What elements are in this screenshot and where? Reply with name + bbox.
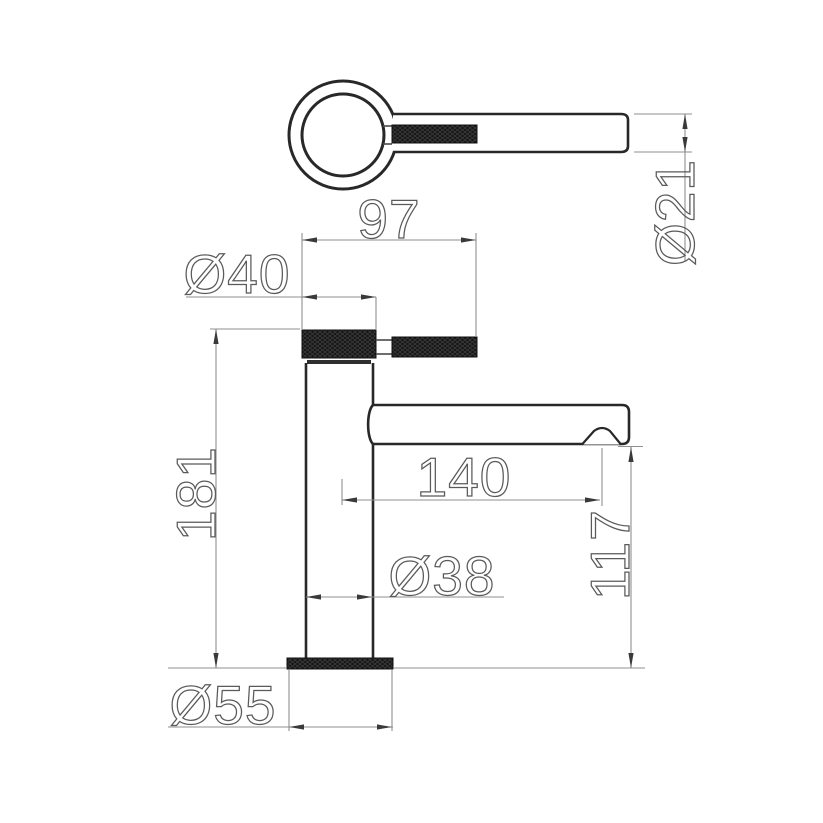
dim-21: Ø21 <box>634 114 706 266</box>
base-knurl-ring <box>287 658 393 669</box>
arrowhead <box>682 137 687 152</box>
dim-label-overall-height: 181 <box>165 446 227 541</box>
dim-label-body-diameter: Ø38 <box>389 545 496 607</box>
technical-drawing: 97 Ø40 Ø21 181 <box>0 0 823 823</box>
arrowhead <box>213 329 218 344</box>
dim-40: Ø40 <box>184 243 376 329</box>
lever-knurl-grip-top <box>392 125 477 143</box>
arrowhead <box>302 237 317 242</box>
top-view <box>289 81 628 189</box>
dim-label-handle-length: 97 <box>357 188 420 250</box>
dim-label-lever-diameter: Ø21 <box>644 159 706 266</box>
dim-label-spout-reach: 140 <box>417 446 512 508</box>
dim-97: 97 <box>302 188 476 336</box>
arrowhead <box>361 294 376 299</box>
arrowhead <box>213 653 218 668</box>
drawing-canvas: 97 Ø40 Ø21 181 <box>0 0 823 823</box>
dim-label-base-diameter: Ø55 <box>170 674 277 736</box>
arrowhead <box>585 497 600 502</box>
dim-117: 117 <box>579 447 643 669</box>
lever-knurl-grip-front <box>392 337 477 357</box>
dim-140: 140 <box>342 446 602 508</box>
arrowhead <box>682 114 687 129</box>
arrowhead <box>628 447 633 462</box>
arrowhead <box>461 237 476 242</box>
arrowhead <box>289 724 304 729</box>
arrowhead <box>377 724 392 729</box>
dim-181: 181 <box>165 329 300 668</box>
handle-cap-knurl <box>302 330 376 358</box>
handle-ring-inner <box>302 94 384 176</box>
arrowhead <box>628 653 633 668</box>
dim-55: Ø55 <box>168 670 393 736</box>
arrowhead <box>302 294 317 299</box>
faucet-body-fill <box>306 363 373 658</box>
dim-label-cap-diameter: Ø40 <box>184 243 291 305</box>
dim-label-spout-height: 117 <box>579 509 641 600</box>
